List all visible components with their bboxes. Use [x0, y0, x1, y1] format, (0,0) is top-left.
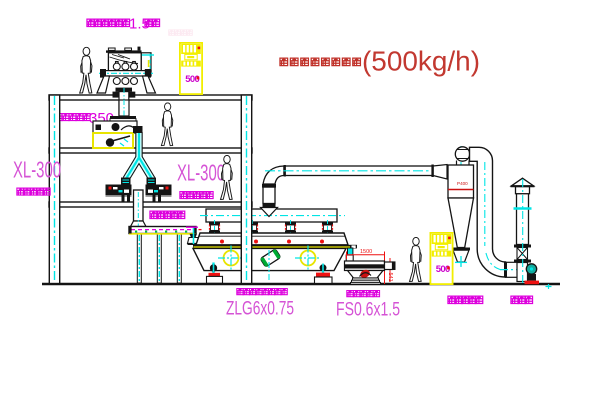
- svg-text:541: 541: [387, 273, 393, 282]
- svg-text:XL-300: XL-300: [13, 157, 61, 183]
- svg-text:ZLG6x0.75: ZLG6x0.75: [226, 299, 294, 320]
- svg-text:(500kg/h): (500kg/h): [362, 46, 480, 77]
- svg-text:P400: P400: [457, 181, 468, 186]
- svg-text:XL-300: XL-300: [177, 160, 225, 186]
- svg-text:FS0.6x1.5: FS0.6x1.5: [336, 300, 400, 321]
- svg-text:1500: 1500: [360, 249, 372, 255]
